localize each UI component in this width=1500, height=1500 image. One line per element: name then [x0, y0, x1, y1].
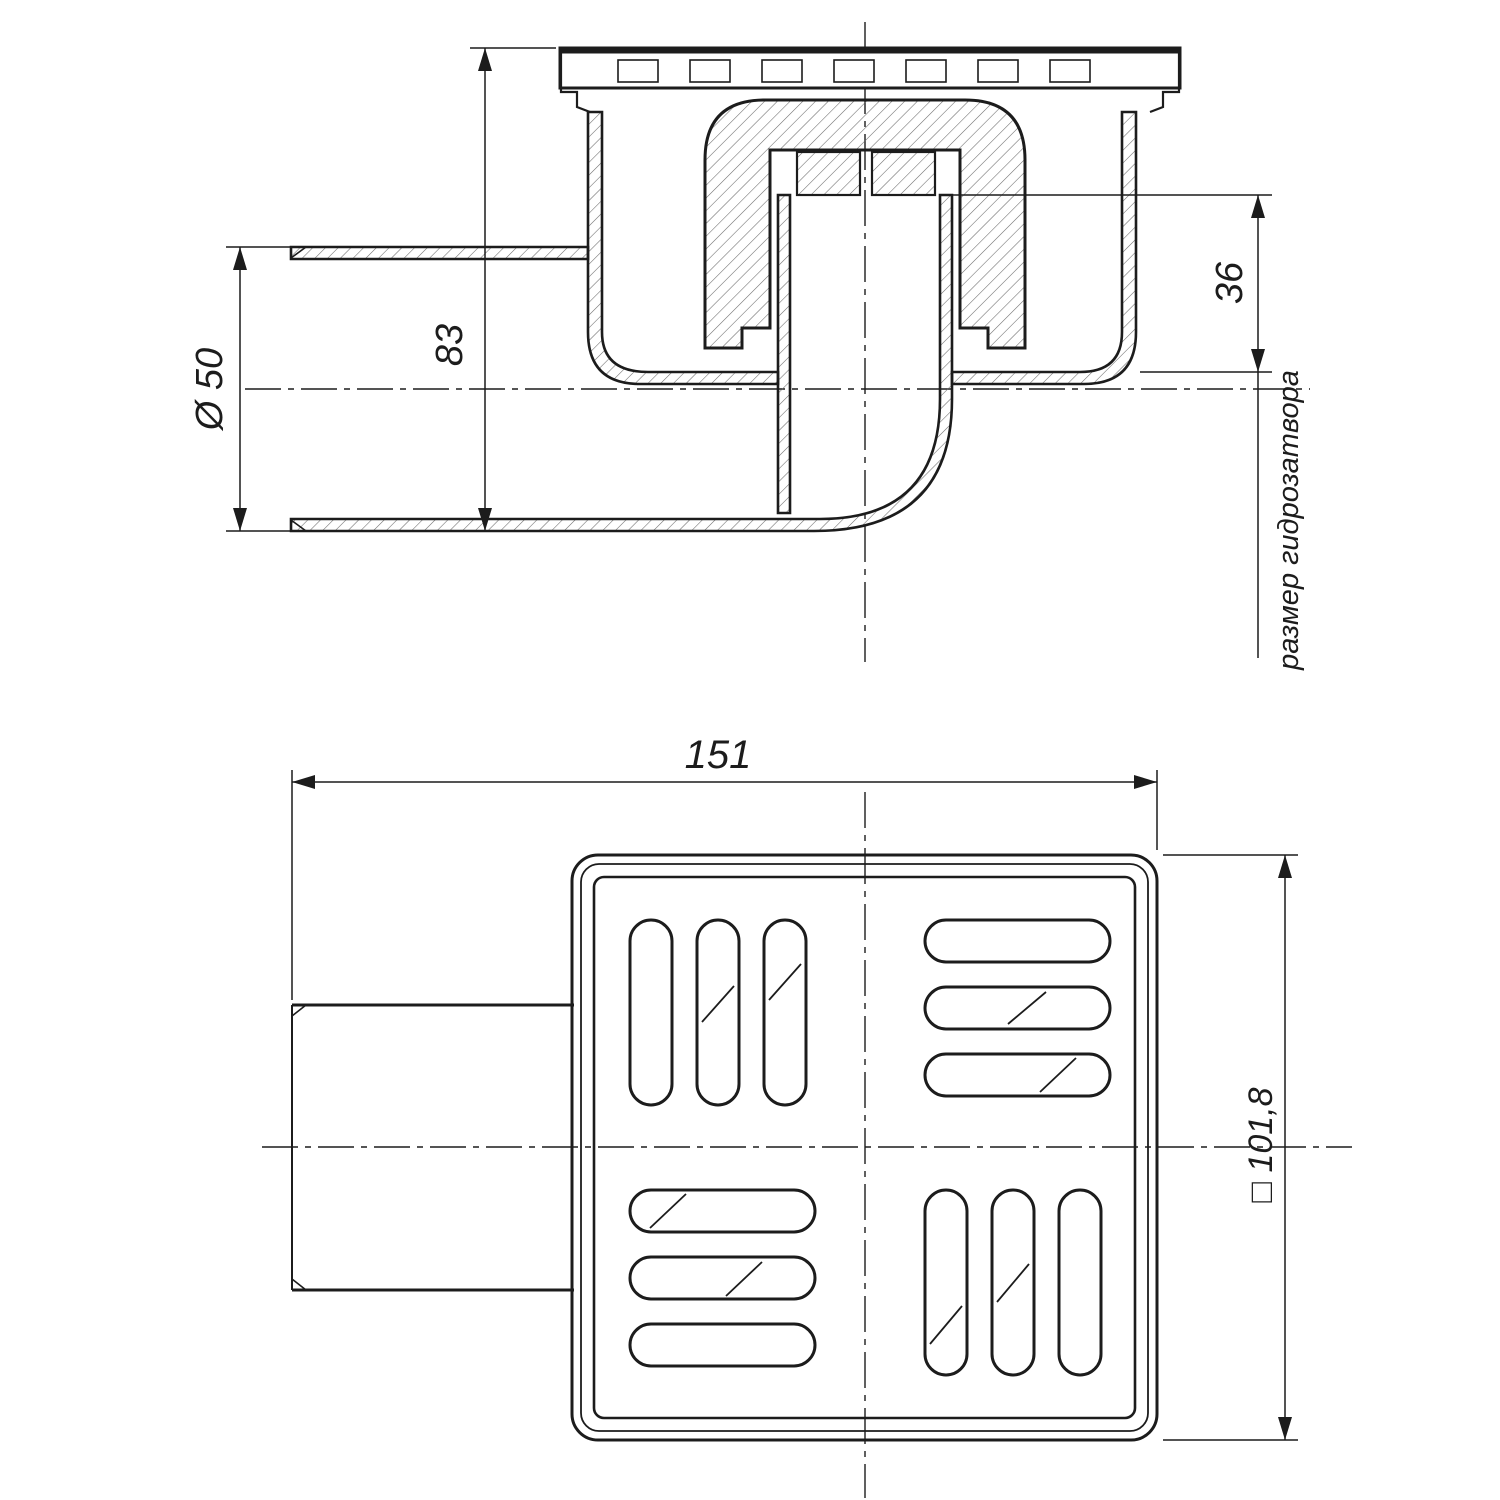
- tube-left-wall: [778, 195, 790, 513]
- bell-top-block-right: [872, 152, 935, 195]
- dim-height-83: [470, 48, 556, 531]
- section-view: Ø 50 83 36 размер гидрозатвора: [189, 22, 1310, 671]
- dim-water-seal-label: 36: [1209, 261, 1251, 304]
- pipe-bottom-and-tube-wall: [291, 195, 952, 531]
- grate-slots-bottom-right: [925, 1190, 1101, 1375]
- floor-drain-technical-drawing: Ø 50 83 36 размер гидрозатвора: [0, 0, 1500, 1500]
- pipe-top-wall-section: [291, 247, 588, 259]
- drawing-canvas: Ø 50 83 36 размер гидрозатвора: [0, 0, 1500, 1500]
- dim-pipe-diameter-label: Ø 50: [189, 348, 231, 432]
- bell-top-block-left: [797, 152, 860, 195]
- grate-slots-top-left: [630, 920, 806, 1105]
- plan-view: 151 □ 101,8: [262, 733, 1352, 1498]
- dim-height-label: 83: [429, 324, 471, 366]
- water-seal-caption: размер гидрозатвора: [1273, 370, 1305, 671]
- dim-square-label: □ 101,8: [1242, 1087, 1280, 1202]
- grate-slots-top-right: [925, 920, 1110, 1096]
- dim-width-151: [292, 770, 1157, 1000]
- dim-width-label: 151: [685, 733, 752, 777]
- grate-slots-bottom-left: [630, 1190, 815, 1366]
